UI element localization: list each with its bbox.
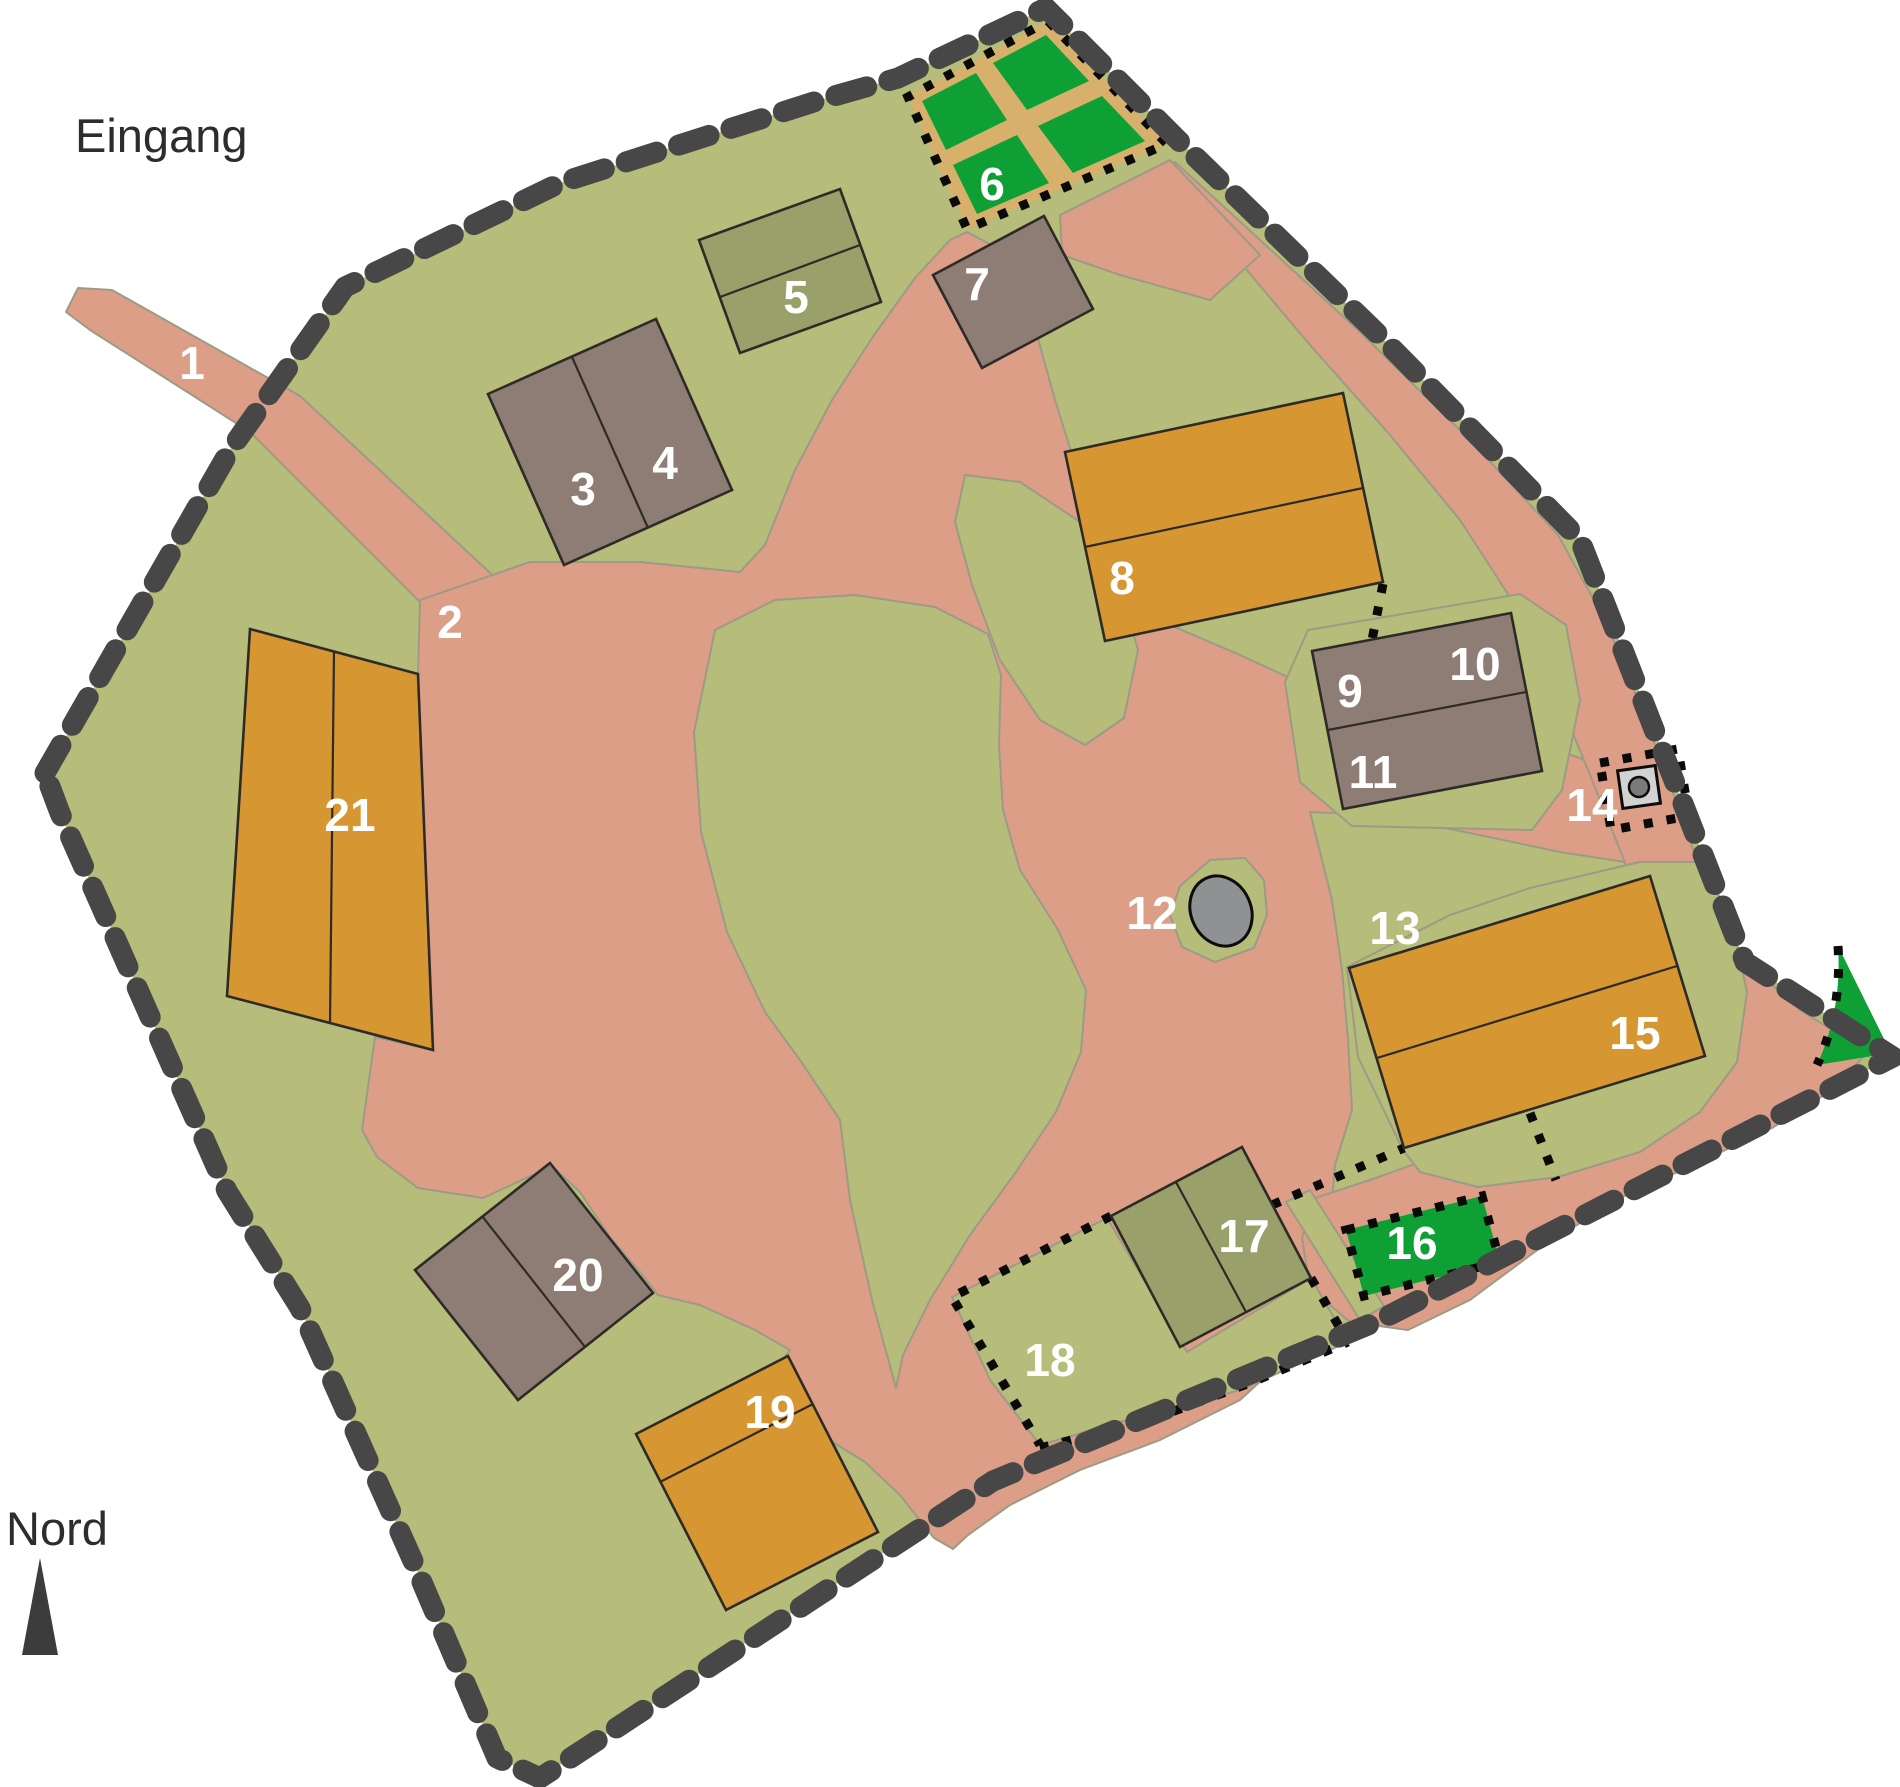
map-label-17: 17: [1218, 1210, 1269, 1262]
map-label-12: 12: [1126, 887, 1177, 939]
north-label: Nord: [6, 1502, 108, 1555]
map-label-18: 18: [1024, 1334, 1075, 1386]
map-label-4: 4: [652, 437, 678, 489]
site-map: Eingang Nord 123456789101112131415161718…: [0, 0, 1900, 1787]
map-label-13: 13: [1369, 902, 1420, 954]
site-map-svg: Eingang Nord 123456789101112131415161718…: [0, 0, 1900, 1787]
map-label-16: 16: [1386, 1217, 1437, 1269]
map-label-15: 15: [1609, 1007, 1660, 1059]
entrance-label: Eingang: [75, 109, 248, 162]
map-label-6: 6: [979, 158, 1005, 210]
map-label-5: 5: [783, 271, 809, 323]
map-label-2: 2: [437, 596, 463, 648]
well-circle: [1628, 776, 1651, 799]
map-label-7: 7: [964, 258, 990, 310]
map-label-11: 11: [1349, 746, 1398, 798]
map-label-21: 21: [324, 789, 375, 841]
well-14: [1618, 766, 1661, 809]
map-label-20: 20: [552, 1249, 603, 1301]
north-arrow-icon: [22, 1558, 58, 1655]
map-label-19: 19: [744, 1386, 795, 1438]
map-label-3: 3: [570, 463, 596, 515]
map-label-10: 10: [1449, 638, 1500, 690]
map-label-1: 1: [179, 337, 205, 389]
map-label-14: 14: [1566, 779, 1618, 831]
map-label-9: 9: [1337, 665, 1363, 717]
map-label-8: 8: [1109, 552, 1135, 604]
